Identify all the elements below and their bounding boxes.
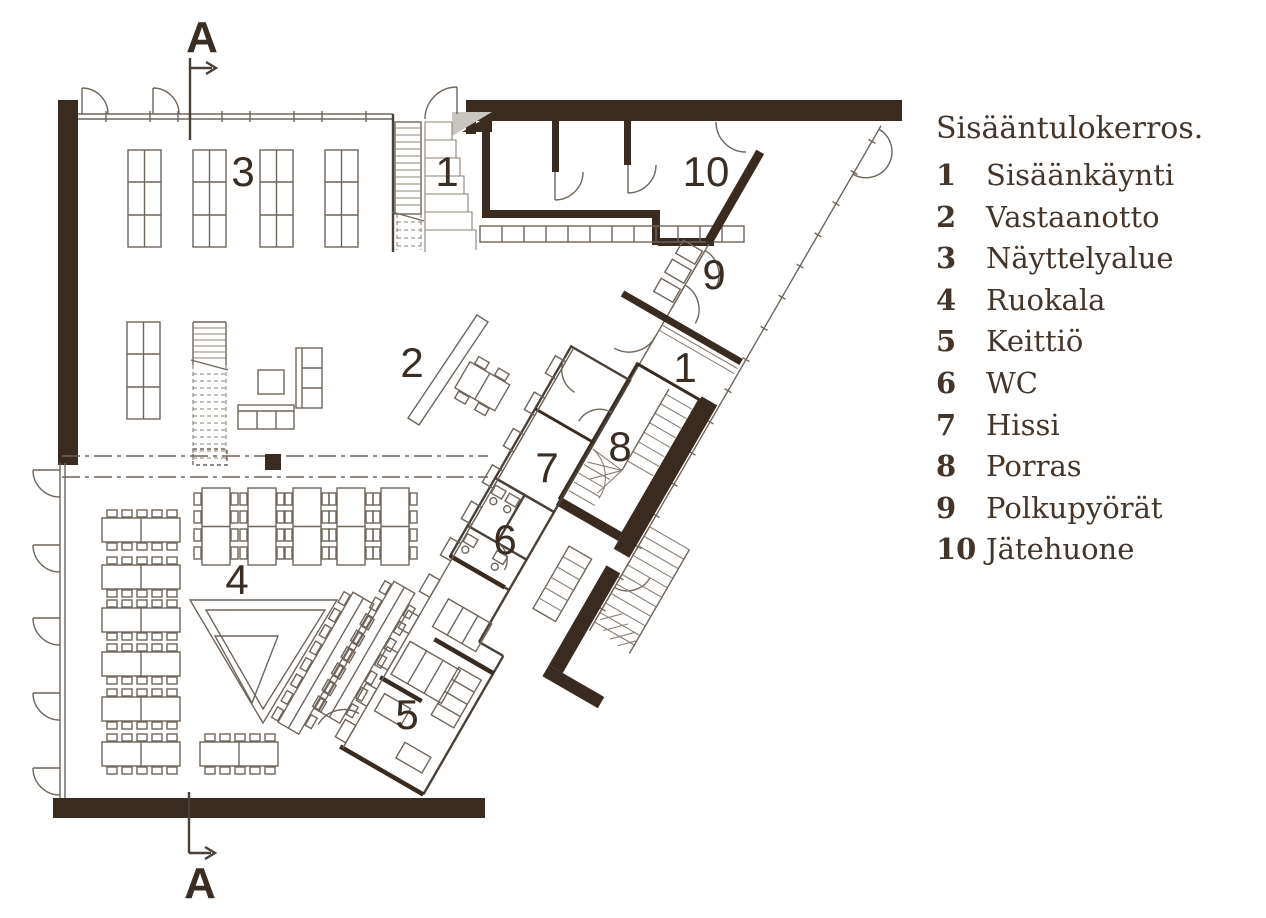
- legend-item-9: 9 Polkupyörät: [936, 491, 1256, 533]
- serving-triangle: [190, 600, 337, 723]
- room-label-entrance-top: 1: [435, 148, 458, 195]
- legend-item-label: Keittiö: [986, 324, 1083, 358]
- legend-item-label: WC: [986, 366, 1038, 400]
- kitchen: [314, 541, 533, 795]
- dining-tables: [102, 488, 417, 774]
- room-label-elevator: 7: [535, 444, 558, 491]
- sofa-set: [238, 348, 322, 429]
- legend-item-label: Vastaanotto: [986, 200, 1160, 234]
- room-label-exhibition: 3: [231, 148, 254, 195]
- legend-item-1: 1 Sisäänkäynti: [936, 158, 1256, 200]
- room-label-reception: 2: [400, 339, 423, 386]
- legend-item-4: 4 Ruokala: [936, 283, 1256, 325]
- section-marker-top: A: [186, 13, 218, 140]
- legend-item-num: 10: [936, 532, 986, 566]
- middle-stair: [191, 322, 228, 462]
- room-label-dining: 4: [225, 556, 248, 603]
- legend-item-num: 3: [936, 241, 986, 275]
- legend-title: Sisääntulokerros.: [936, 112, 1256, 146]
- legend-item-label: Jätehuone: [986, 532, 1134, 566]
- legend-item-3: 3 Näyttelyalue: [936, 241, 1256, 283]
- legend-item-label: Sisäänkäynti: [986, 158, 1174, 192]
- legend-item-num: 8: [936, 449, 986, 483]
- floor-plan-page: A A 3 1 10 9 2 1 8 7 6 4 5 Sisääntuloker…: [0, 0, 1266, 918]
- legend-item-8: 8 Porras: [936, 449, 1256, 491]
- room-label-entrance-corridor: 1: [673, 344, 696, 391]
- legend: Sisääntulokerros. 1 Sisäänkäynti 2 Vasta…: [936, 112, 1256, 574]
- legend-item-7: 7 Hissi: [936, 408, 1256, 450]
- legend-item-num: 1: [936, 158, 986, 192]
- entrance-stairs: [392, 87, 492, 328]
- legend-item-label: Ruokala: [986, 283, 1105, 317]
- legend-item-label: Hissi: [986, 408, 1060, 442]
- room-label-kitchen: 5: [395, 691, 418, 738]
- legend-item-label: Polkupyörät: [986, 491, 1163, 525]
- legend-item-label: Porras: [986, 449, 1082, 483]
- legend-item-10: 10 Jätehuone: [936, 532, 1256, 574]
- legend-item-num: 6: [936, 366, 986, 400]
- legend-item-num: 5: [936, 324, 986, 358]
- legend-item-num: 9: [936, 491, 986, 525]
- room-label-stairs: 8: [608, 423, 631, 470]
- section-label-bottom: A: [184, 859, 216, 908]
- legend-item-num: 7: [936, 408, 986, 442]
- legend-item-5: 5 Keittiö: [936, 324, 1256, 366]
- legend-item-num: 4: [936, 283, 986, 317]
- diagonal-wing: [266, 7, 921, 857]
- legend-item-2: 2 Vastaanotto: [936, 200, 1256, 242]
- legend-item-num: 2: [936, 200, 986, 234]
- section-label-top: A: [186, 13, 218, 62]
- legend-item-label: Näyttelyalue: [986, 241, 1174, 275]
- room-label-waste: 10: [683, 148, 730, 195]
- legend-item-6: 6 WC: [936, 366, 1256, 408]
- room-label-bikes: 9: [702, 251, 725, 298]
- room-label-wc: 6: [493, 516, 516, 563]
